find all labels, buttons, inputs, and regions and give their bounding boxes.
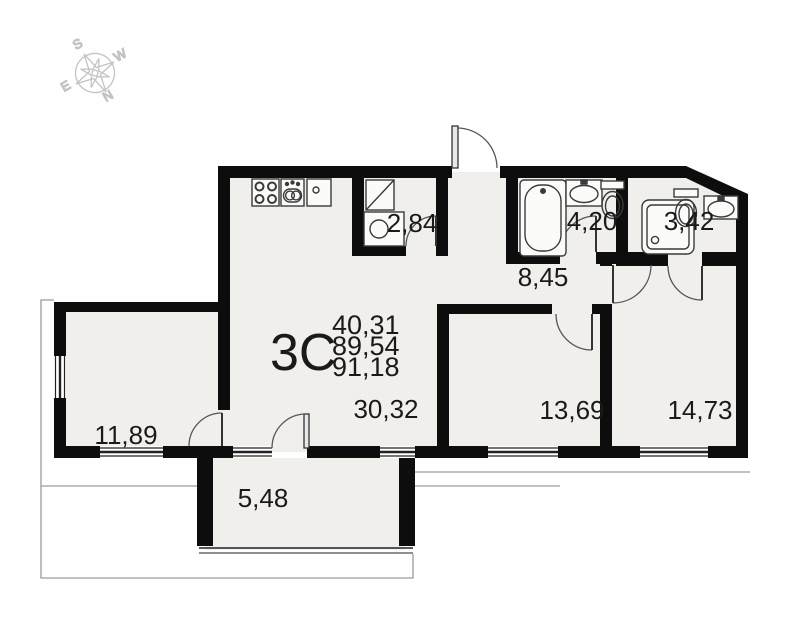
wall-top-left	[218, 166, 452, 178]
compass-hub	[91, 69, 99, 77]
room-label-living: 30,32	[353, 394, 418, 424]
compass-star-secondary	[77, 55, 114, 92]
wall-living-bedroom-divider	[437, 304, 449, 446]
compass-east-label: E	[58, 77, 73, 94]
window-bedroom-right	[640, 446, 708, 458]
door-leaf	[304, 414, 309, 448]
sink-tap	[581, 180, 587, 184]
wall-bedroom-left-west-a	[54, 302, 66, 356]
window-bedroom-left-side	[54, 356, 66, 398]
wall-left-living	[218, 166, 230, 410]
door-leaf	[452, 126, 458, 168]
wall-bedroom-middle-top-stub	[592, 304, 612, 314]
apartment-type-label: 3C	[270, 324, 336, 382]
compass-rose: S W N E	[58, 35, 130, 104]
wall-top-right	[500, 166, 686, 178]
wall-bedroom-right-left-b	[600, 304, 612, 458]
bathtub-icon	[520, 180, 566, 256]
room-label-hallway: 8,45	[518, 262, 569, 292]
room-label-bathroom: 4,20	[567, 206, 618, 236]
room-label-storage: 2,84	[387, 208, 438, 238]
window-living	[380, 446, 415, 458]
room-label-bedroom-right: 14,73	[667, 395, 732, 425]
drop	[297, 183, 300, 186]
tub-tap	[541, 189, 546, 194]
wall-shower-bottom-b	[702, 252, 748, 266]
wall-storage-bottom	[352, 246, 406, 256]
wall-right	[736, 194, 748, 458]
wall-bottom-5	[558, 446, 640, 458]
door-swing-arc	[457, 128, 497, 168]
compass-south-label: S	[70, 35, 85, 52]
wall-bottom-4	[415, 446, 488, 458]
room-label-bedroom-left: 11,89	[94, 420, 157, 450]
floor-plan-page: S W N E	[0, 0, 788, 628]
sink-tap	[718, 196, 724, 200]
room-label-bedroom-middle: 13,69	[539, 395, 604, 425]
wall-storage-right	[436, 172, 448, 256]
wall-bedroom-left-west-b	[54, 398, 66, 448]
wall-bottom-3	[307, 446, 380, 458]
wall-storage-left	[352, 172, 364, 256]
wall-bottom-1	[54, 446, 100, 458]
wall-balcony-left	[197, 458, 213, 546]
bathroom-sink-icon	[566, 180, 602, 206]
stove-icon	[252, 179, 279, 206]
wall-bottom-6	[708, 446, 748, 458]
toilet-tank	[601, 181, 624, 189]
room-label-balcony: 5,48	[238, 483, 289, 513]
balcony-glazing	[199, 548, 413, 553]
drop	[286, 183, 289, 186]
window-bedroom-middle	[488, 446, 558, 458]
floor-plan-drawing: S W N E	[0, 0, 788, 628]
entrance-door	[452, 126, 497, 168]
window-living-small	[233, 446, 272, 458]
kitchen-sink-double-icon	[281, 179, 304, 206]
area-value-3: 91,18	[332, 352, 400, 382]
balcony-floor	[205, 458, 405, 550]
wall-bedroom-left-top	[54, 302, 230, 312]
compass-star-diagonal	[77, 55, 114, 92]
compass-north-label: N	[100, 87, 116, 105]
wall-bottom-2	[163, 446, 233, 458]
wall-balcony-right	[399, 458, 415, 546]
toilet-tank	[674, 189, 698, 197]
wall-bedroom-right-left-a	[600, 252, 612, 266]
room-label-shower-room: 3,42	[664, 206, 715, 236]
sink-body	[307, 179, 331, 206]
wall-bathroom-left	[506, 172, 518, 264]
storage-cabinet-icon	[366, 180, 394, 210]
wall-bedroom-middle-top	[437, 304, 552, 314]
drop	[291, 181, 294, 184]
kitchen-sink-icon	[307, 179, 331, 206]
